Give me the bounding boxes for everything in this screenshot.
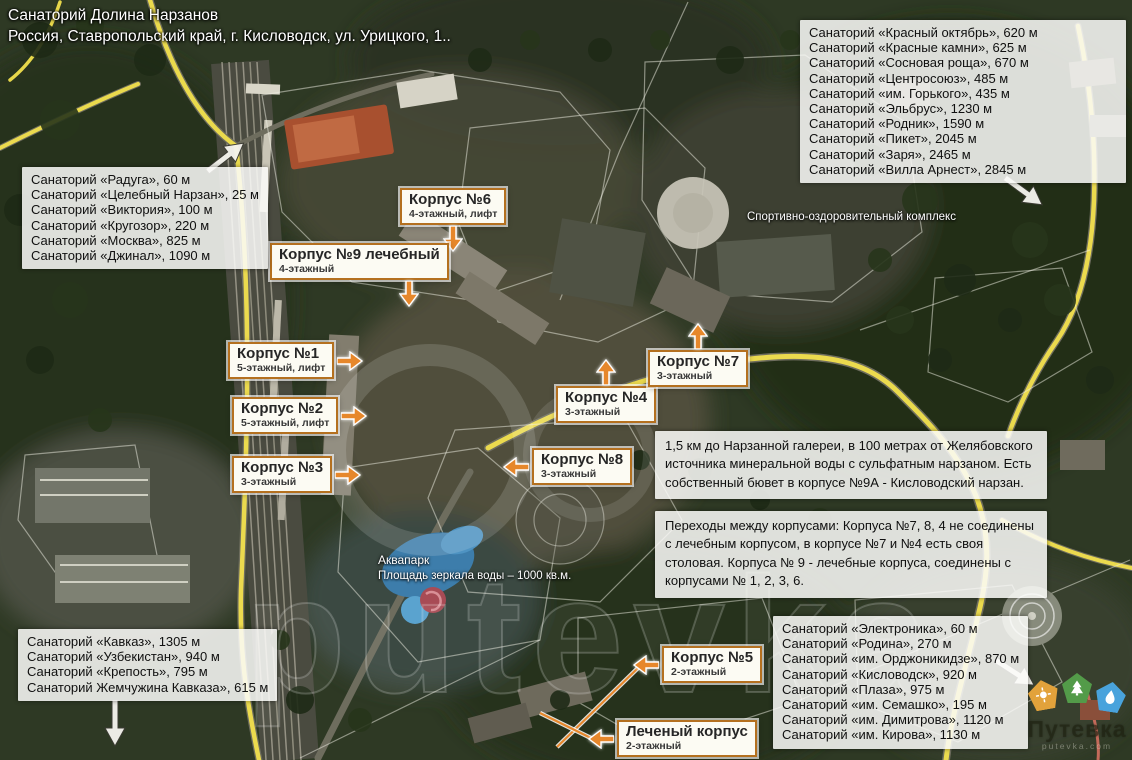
building-label-floors: 4-этажный xyxy=(279,264,440,275)
distance-list-item: Санаторий «Родник», 1590 м xyxy=(809,116,1117,131)
building-label-title: Корпус №5 xyxy=(671,649,753,667)
building-label-title: Корпус №2 xyxy=(241,400,329,418)
info-box-narzan: 1,5 км до Нарзанной галереи, в 100 метра… xyxy=(655,431,1047,499)
sport-complex-label: Спортивно-оздоровительный комплекс xyxy=(747,211,956,223)
orange-arrow-right-icon xyxy=(335,465,361,485)
building-label-floors: 5-этажный, лифт xyxy=(241,418,329,429)
distance-list-item: Санаторий «Красные камни», 625 м xyxy=(809,40,1117,55)
orange-arrow-up-icon xyxy=(688,323,708,349)
orange-arrow-left-icon xyxy=(503,457,529,477)
building-label-title: Корпус №6 xyxy=(409,191,497,209)
distance-list-bottom-left: Санаторий «Кавказ», 1305 мСанаторий «Узб… xyxy=(18,629,277,701)
building-label-korpus-3: Корпус №33-этажный xyxy=(232,456,332,493)
building-label-floors: 3-этажный xyxy=(565,407,647,418)
orange-arrow-up-icon xyxy=(596,359,616,385)
building-label-lecheny-korpus: Леченый корпус2-этажный xyxy=(617,720,757,757)
map-title-line1: Санаторий Долина Нарзанов xyxy=(8,6,451,27)
distance-list-item: Санаторий «Крепость», 795 м xyxy=(27,664,268,679)
building-label-floors: 3-этажный xyxy=(541,469,623,480)
distance-list-item: Санаторий «им. Семашко», 195 м xyxy=(782,697,1019,712)
distance-list-item: Санаторий «Кругозор», 220 м xyxy=(31,218,259,233)
building-label-korpus-2: Корпус №25-этажный, лифт xyxy=(232,397,338,434)
building-label-korpus-9: Корпус №9 лечебный4-этажный xyxy=(270,243,449,280)
distance-list-item: Санаторий «Плаза», 975 м xyxy=(782,682,1019,697)
distance-list-item: Санаторий Жемчужина Кавказа», 615 м xyxy=(27,680,268,695)
distance-list-top-left: Санаторий «Радуга», 60 мСанаторий «Целеб… xyxy=(22,167,268,269)
distance-list-item: Санаторий «Кисловодск», 920 м xyxy=(782,667,1019,682)
distance-list-item: Санаторий «им. Димитрова», 1120 м xyxy=(782,712,1019,727)
orange-arrow-right-icon xyxy=(341,406,367,426)
distance-list-item: Санаторий «Электроника», 60 м xyxy=(782,621,1019,636)
distance-list-item: Санаторий «Джинал», 1090 м xyxy=(31,248,259,263)
distance-list-item: Санаторий «Заря», 2465 м xyxy=(809,147,1117,162)
building-label-title: Корпус №4 xyxy=(565,389,647,407)
distance-list-item: Санаторий «Москва», 825 м xyxy=(31,233,259,248)
putevka-logo: Путевка putevka.com xyxy=(1024,672,1130,751)
building-label-floors: 2-этажный xyxy=(626,741,748,752)
aquapark-label: Аквапарк Площадь зеркала воды – 1000 кв.… xyxy=(378,553,571,584)
orange-arrow-left-icon xyxy=(633,655,659,675)
distance-list-item: Санаторий «Узбекистан», 940 м xyxy=(27,649,268,664)
building-label-korpus-7: Корпус №73-этажный xyxy=(648,350,748,387)
building-label-floors: 3-этажный xyxy=(657,371,739,382)
building-label-title: Корпус №1 xyxy=(237,345,325,363)
building-label-korpus-1: Корпус №15-этажный, лифт xyxy=(228,342,334,379)
building-label-title: Корпус №8 xyxy=(541,451,623,469)
putevka-badges xyxy=(1024,672,1130,712)
map-title-line2: Россия, Ставропольский край, г. Кисловод… xyxy=(8,27,451,48)
distance-list-item: Санаторий «Целебный Нарзан», 25 м xyxy=(31,187,259,202)
distance-list-item: Санаторий «Красный октябрь», 620 м xyxy=(809,25,1117,40)
building-label-floors: 4-этажный, лифт xyxy=(409,209,497,220)
distance-list-item: Санаторий «Сосновая роща», 670 м xyxy=(809,55,1117,70)
orange-arrow-down-icon xyxy=(399,281,419,307)
building-label-korpus-8: Корпус №83-этажный xyxy=(532,448,632,485)
building-label-floors: 5-этажный, лифт xyxy=(237,363,325,374)
distance-list-item: Санаторий «Центросоюз», 485 м xyxy=(809,71,1117,86)
map-title: Санаторий Долина Нарзанов Россия, Ставро… xyxy=(8,6,451,48)
distance-list-item: Санаторий «Радуга», 60 м xyxy=(31,172,259,187)
building-label-title: Корпус №9 лечебный xyxy=(279,246,440,264)
water-drop-badge-icon xyxy=(1093,680,1127,714)
distance-list-item: Санаторий «Виктория», 100 м xyxy=(31,202,259,217)
building-label-title: Леченый корпус xyxy=(626,723,748,741)
distance-list-item: Санаторий «Эльбрус», 1230 м xyxy=(809,101,1117,116)
distance-list-top-right: Санаторий «Красный октябрь», 620 мСанато… xyxy=(800,20,1126,183)
building-label-title: Корпус №7 xyxy=(657,353,739,371)
distance-list-item: Санаторий «Родина», 270 м xyxy=(782,636,1019,651)
distance-list-item: Санаторий «им. Кирова», 1130 м xyxy=(782,727,1019,742)
distance-list-item: Санаторий «Пикет», 2045 м xyxy=(809,131,1117,146)
orange-arrow-right-icon xyxy=(337,351,363,371)
tree-badge-icon xyxy=(1062,673,1092,703)
info-box-transitions: Переходы между корпусами: Корпуса №7, 8,… xyxy=(655,511,1047,598)
distance-list-bottom-right: Санаторий «Электроника», 60 мСанаторий «… xyxy=(773,616,1028,749)
building-label-korpus-4: Корпус №43-этажный xyxy=(556,386,656,423)
building-label-floors: 2-этажный xyxy=(671,667,753,678)
building-label-korpus-5: Корпус №52-этажный xyxy=(662,646,762,683)
distance-list-item: Санаторий «Кавказ», 1305 м xyxy=(27,634,268,649)
distance-list-item: Санаторий «Вилла Арнест», 2845 м xyxy=(809,162,1117,177)
aquapark-title: Аквапарк xyxy=(378,553,571,569)
putevka-logo-text: Путевка xyxy=(1024,716,1130,743)
distance-list-item: Санаторий «им. Орджоникидзе», 870 м xyxy=(782,651,1019,666)
sun-badge-icon xyxy=(1026,678,1061,713)
building-label-korpus-6: Корпус №64-этажный, лифт xyxy=(400,188,506,225)
building-label-title: Корпус №3 xyxy=(241,459,323,477)
aquapark-subtitle: Площадь зеркала воды – 1000 кв.м. xyxy=(378,569,571,584)
distance-list-item: Санаторий «им. Горького», 435 м xyxy=(809,86,1117,101)
orange-arrow-left-icon xyxy=(588,729,614,749)
map-screenshot: putevka Санаторий Долина Нарзанов Россия… xyxy=(0,0,1132,760)
building-label-floors: 3-этажный xyxy=(241,477,323,488)
